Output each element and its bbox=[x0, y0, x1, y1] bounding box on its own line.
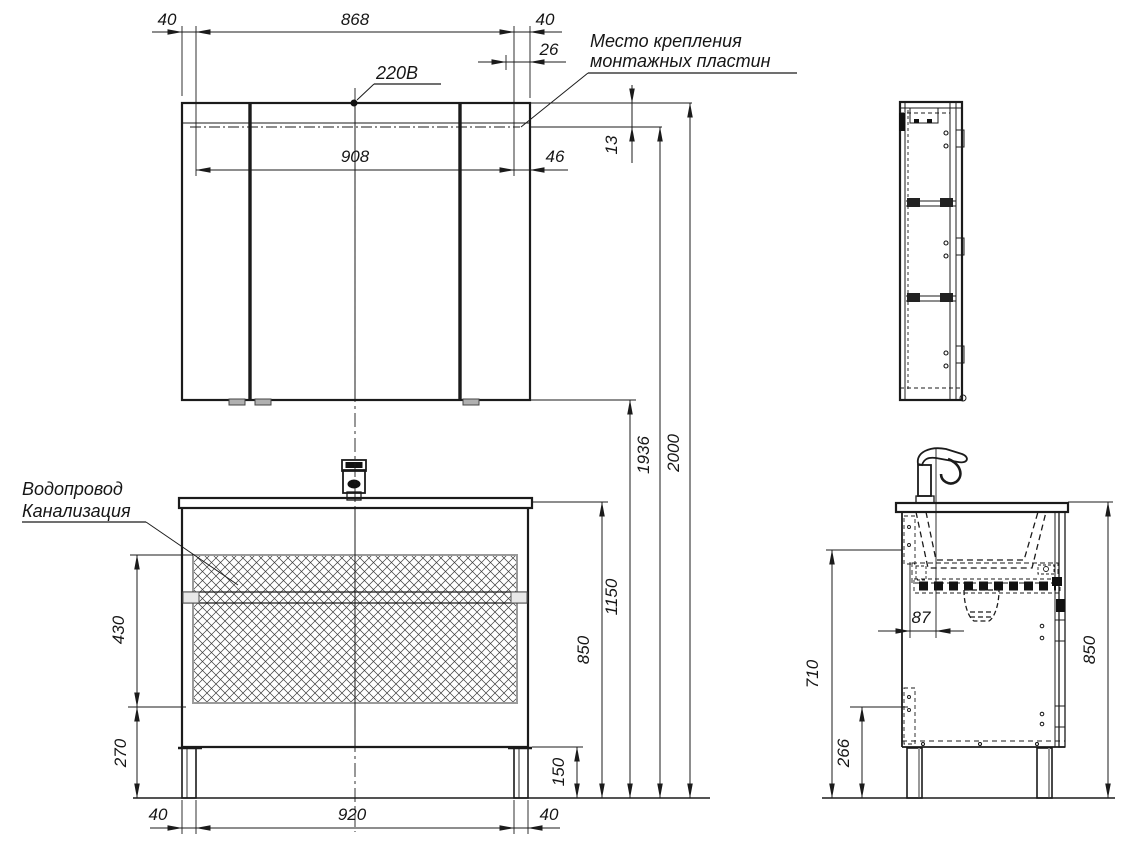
dim-bottom-left-40: 40 bbox=[149, 805, 168, 824]
annotations: 220В Место крепления монтажных пластин В… bbox=[22, 31, 797, 585]
mounting-note-line2: монтажных пластин bbox=[590, 51, 771, 71]
door-handle bbox=[463, 399, 479, 405]
dim-908: 908 bbox=[341, 147, 370, 166]
dim-13: 13 bbox=[602, 135, 621, 154]
dim-850-front: 850 bbox=[574, 635, 593, 664]
faucet-side-icon bbox=[916, 448, 967, 503]
dim-710: 710 bbox=[803, 659, 822, 688]
installation-drawing: 40 868 40 26 908 46 13 850 1150 1936 200… bbox=[0, 0, 1148, 855]
shelf-clip bbox=[907, 198, 920, 207]
dim-266: 266 bbox=[834, 738, 853, 768]
dim-150: 150 bbox=[549, 757, 568, 786]
dim-top-left-40: 40 bbox=[158, 10, 177, 29]
hinge-marks bbox=[922, 624, 1044, 745]
dim-26: 26 bbox=[539, 40, 559, 59]
shelf-clip bbox=[907, 293, 920, 302]
sewerage-label: Канализация bbox=[22, 501, 131, 521]
mirror-cabinet-side bbox=[899, 102, 966, 401]
door-handle bbox=[255, 399, 271, 405]
door-handle bbox=[229, 399, 245, 405]
hinge-marks bbox=[944, 131, 948, 368]
leg-front-left bbox=[182, 748, 196, 798]
faucet-front-icon bbox=[342, 460, 366, 500]
dim-868: 868 bbox=[341, 10, 370, 29]
dim-270: 270 bbox=[111, 738, 130, 768]
back-panel bbox=[1059, 512, 1065, 747]
shelf-clip bbox=[940, 198, 953, 207]
dim-920: 920 bbox=[338, 805, 367, 824]
water-supply-label: Водопровод bbox=[22, 479, 123, 499]
dim-2000: 2000 bbox=[664, 434, 683, 473]
dim-46: 46 bbox=[546, 147, 565, 166]
dim-430: 430 bbox=[109, 615, 128, 644]
drawer-handle-notch bbox=[511, 592, 527, 603]
mounting-note-line1: Место крепления bbox=[590, 31, 742, 51]
dim-87: 87 bbox=[912, 608, 931, 627]
power-point-marker bbox=[351, 100, 358, 107]
dim-bottom-right-40: 40 bbox=[540, 805, 559, 824]
siphon-hidden bbox=[964, 590, 999, 621]
power-label: 220В bbox=[375, 63, 418, 83]
dim-1150: 1150 bbox=[602, 578, 621, 615]
shelf-clip bbox=[940, 293, 953, 302]
dim-850-side: 850 bbox=[1080, 635, 1099, 664]
leg-front-right bbox=[514, 748, 528, 798]
dim-top-right-40: 40 bbox=[536, 10, 555, 29]
drawer-handle-notch bbox=[183, 592, 199, 603]
countertop-side bbox=[896, 503, 1068, 512]
dim-1936: 1936 bbox=[634, 436, 653, 474]
technical-drawing-page: 40 868 40 26 908 46 13 850 1150 1936 200… bbox=[0, 0, 1148, 855]
hinge-block bbox=[899, 113, 905, 131]
sink-basin-hidden bbox=[916, 512, 1046, 568]
